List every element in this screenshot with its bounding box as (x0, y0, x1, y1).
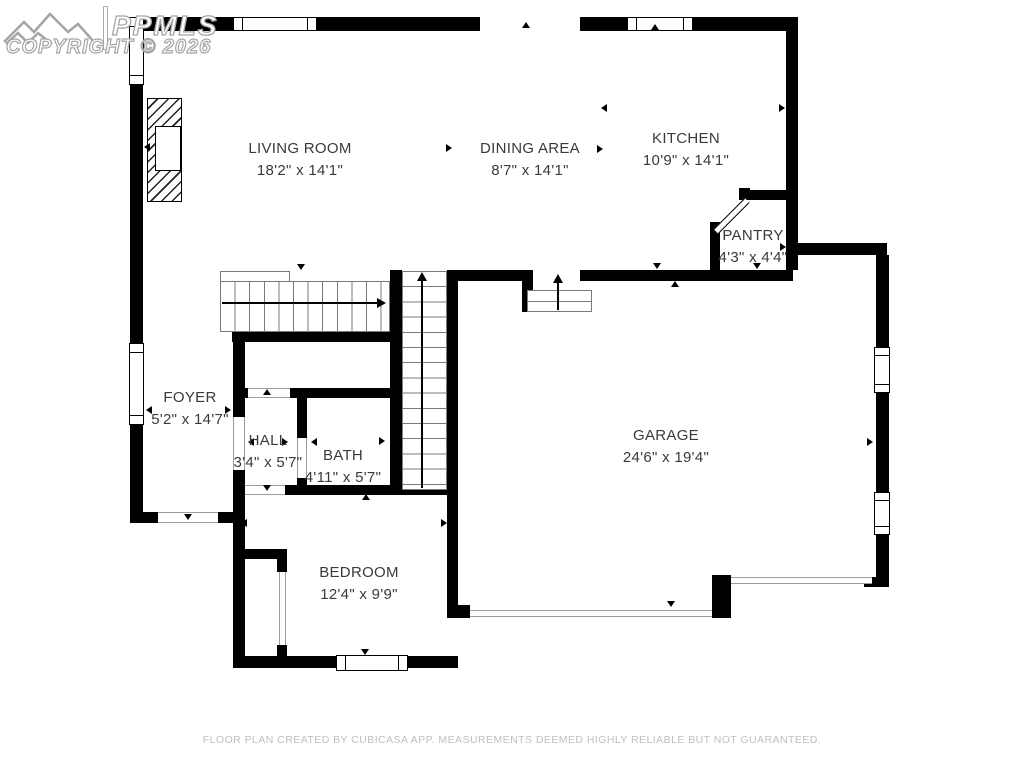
window (233, 17, 317, 31)
window (874, 492, 890, 535)
room-dims: 12'4" x 9'9" (319, 584, 399, 606)
steps-direction-arrow-icon (553, 274, 563, 283)
floor-plan-canvas: LIVING ROOM 18'2" x 14'1" DINING AREA 8'… (0, 0, 1024, 767)
room-dims: 4'3" x 4'4" (719, 247, 788, 269)
wall (277, 558, 287, 572)
wall (747, 190, 790, 200)
window-frame-line (874, 384, 890, 385)
room-name: HALL (234, 430, 303, 452)
room-label-living-room: LIVING ROOM 18'2" x 14'1" (248, 138, 351, 182)
window-frame-line (129, 352, 144, 353)
wall (693, 17, 798, 31)
window-frame-line (874, 355, 890, 356)
window (874, 347, 890, 393)
room-label-bath: BATH 4'11" x 5'7" (305, 445, 381, 489)
dimension-arrow-icon (441, 519, 447, 527)
room-label-garage: GARAGE 24'6" x 19'4" (623, 425, 709, 469)
wall (712, 575, 731, 618)
room-label-bedroom: BEDROOM 12'4" x 9'9" (319, 562, 399, 606)
room-name: PANTRY (719, 225, 788, 247)
closet-door-opening (279, 572, 286, 645)
wall (390, 270, 402, 495)
window-frame-line (636, 17, 637, 31)
staircase-lower-run (402, 271, 447, 490)
window-frame-line (398, 655, 399, 671)
garage-door-opening (470, 610, 712, 617)
wall (317, 17, 480, 31)
window-frame-line (345, 655, 346, 671)
window (627, 17, 693, 31)
room-dims: 24'6" x 19'4" (623, 447, 709, 469)
dimension-arrow-icon (361, 649, 369, 655)
steps-direction-line (557, 282, 559, 310)
room-name: FOYER (151, 387, 229, 409)
stair-direction-line (222, 302, 380, 304)
room-label-hall: HALL 3'4" x 5'7" (234, 430, 303, 474)
wall (876, 535, 889, 587)
window-frame-line (129, 415, 144, 416)
wall (232, 331, 402, 342)
wall (580, 270, 793, 281)
staircase-upper-run (220, 281, 390, 332)
wall (233, 470, 245, 668)
window (129, 343, 144, 425)
window-frame-line (307, 17, 308, 31)
dimension-arrow-icon (667, 601, 675, 607)
wall (130, 512, 158, 523)
dimension-arrow-icon (362, 494, 370, 500)
wall (786, 17, 798, 270)
dimension-arrow-icon (263, 485, 271, 491)
room-dims: 4'11" x 5'7" (305, 467, 381, 489)
dimension-arrow-icon (522, 22, 530, 28)
window-frame-line (242, 17, 243, 31)
wall (876, 393, 889, 492)
wall (447, 605, 470, 618)
dimension-arrow-icon (651, 24, 659, 30)
room-label-kitchen: KITCHEN 10'9" x 14'1" (643, 128, 729, 172)
window-frame-line (129, 75, 144, 76)
dimension-arrow-icon (779, 104, 785, 112)
dimension-arrow-icon (867, 438, 873, 446)
room-dims: 5'2" x 14'7" (151, 409, 229, 431)
room-label-dining-area: DINING AREA 8'7" x 14'1" (480, 138, 580, 182)
wall (130, 425, 143, 512)
dimension-arrow-icon (379, 437, 385, 445)
dimension-arrow-icon (144, 143, 150, 151)
dimension-arrow-icon (340, 390, 348, 396)
dimension-arrow-icon (653, 263, 661, 269)
window-frame-line (874, 500, 890, 501)
wall (447, 270, 533, 281)
window-frame-line (874, 526, 890, 527)
fireplace (147, 98, 182, 202)
window-frame-line (683, 17, 684, 31)
dimension-arrow-icon (263, 389, 271, 395)
room-dims: 18'2" x 14'1" (248, 160, 351, 182)
stair-direction-arrow-icon (377, 298, 386, 308)
dimension-arrow-icon (446, 144, 452, 152)
wall (130, 85, 143, 343)
dimension-arrow-icon (601, 104, 607, 112)
window (336, 655, 408, 671)
dimension-arrow-icon (597, 145, 603, 153)
dimension-arrow-icon (241, 519, 247, 527)
wall (876, 255, 889, 347)
room-name: GARAGE (623, 425, 709, 447)
room-label-pantry: PANTRY 4'3" x 4'4" (719, 225, 788, 269)
room-name: BEDROOM (319, 562, 399, 584)
stair-direction-arrow-icon (417, 272, 427, 281)
room-name: BATH (305, 445, 381, 467)
wall (793, 243, 887, 255)
wall (277, 645, 287, 658)
dimension-arrow-icon (297, 264, 305, 270)
dimension-arrow-icon (671, 281, 679, 287)
room-name: DINING AREA (480, 138, 580, 160)
dimension-arrow-icon (184, 514, 192, 520)
stair-direction-line (421, 280, 423, 488)
room-dims: 10'9" x 14'1" (643, 150, 729, 172)
wall (407, 656, 458, 668)
room-name: KITCHEN (643, 128, 729, 150)
room-name: LIVING ROOM (248, 138, 351, 160)
firebox (155, 126, 181, 171)
room-label-foyer: FOYER 5'2" x 14'7" (151, 387, 229, 431)
wall (580, 17, 627, 31)
wall (233, 331, 245, 417)
room-dims: 3'4" x 5'7" (234, 452, 303, 474)
watermark-copyright: COPYRIGHT © 2026 (6, 36, 211, 59)
footer-disclaimer: FLOOR PLAN CREATED BY CUBICASA APP. MEAS… (0, 734, 1024, 746)
entry-steps (527, 290, 592, 312)
garage-door-opening (731, 577, 872, 584)
staircase-landing-edge (220, 271, 290, 282)
wall (447, 270, 458, 618)
room-dims: 8'7" x 14'1" (480, 160, 580, 182)
